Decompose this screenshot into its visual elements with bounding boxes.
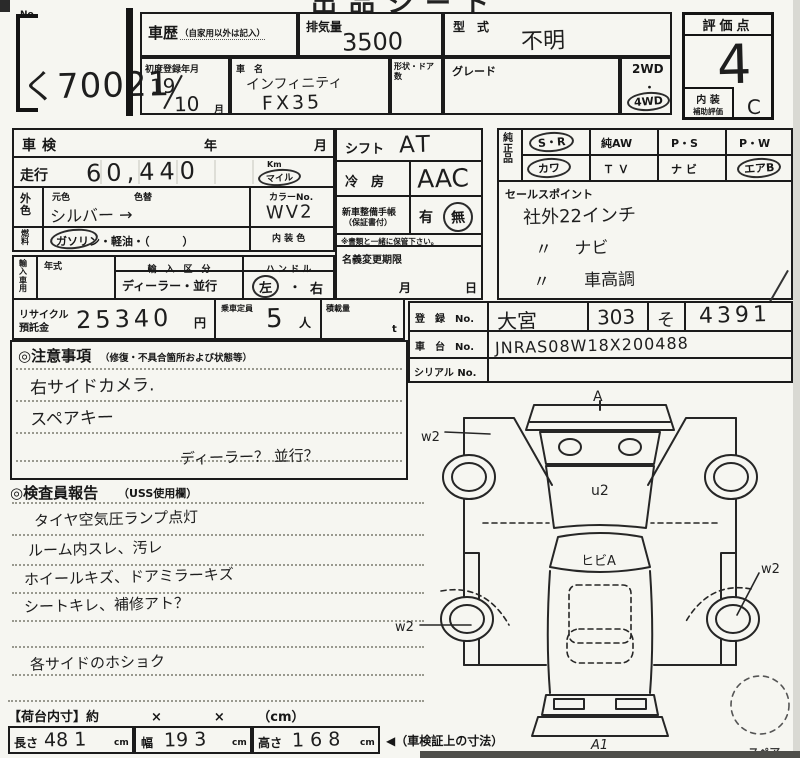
month-suffix: 月 bbox=[214, 101, 224, 116]
odometer-label: 走行 bbox=[20, 165, 48, 185]
color-cell-divider2 bbox=[249, 188, 251, 226]
nin-label: 人 bbox=[299, 314, 311, 331]
dims-title: 【荷台内寸】約 × × （cm） bbox=[8, 706, 305, 725]
ton-label: t bbox=[392, 324, 397, 335]
model-code-box: 型 式 不明 bbox=[443, 12, 672, 57]
length-unit: cm bbox=[114, 738, 129, 748]
taillight-right bbox=[616, 699, 646, 709]
sales-line-2: 〃 ナビ bbox=[535, 233, 609, 260]
odometer-value: 60,440 bbox=[86, 157, 201, 188]
inspector-rule-7 bbox=[12, 674, 424, 676]
reg-kana: そ bbox=[657, 306, 676, 332]
interior-color-label: 内 装 色 bbox=[272, 231, 305, 244]
length-label: 長さ bbox=[14, 734, 38, 751]
handle-header: ハ ン ド ル bbox=[244, 257, 333, 272]
wheel-rear-right bbox=[707, 597, 759, 641]
width-unit: cm bbox=[232, 738, 247, 748]
lot-bracket-bar bbox=[126, 8, 133, 116]
recycle-value: 25340 bbox=[76, 304, 173, 335]
inspector-rule-6 bbox=[12, 646, 424, 648]
displacement-box: 排気量 3500 bbox=[298, 12, 443, 57]
reg-value-row: 大宮 303 そ 4391 bbox=[487, 301, 793, 332]
height-value: 1 6 8 bbox=[292, 728, 341, 751]
inspector-line-1: タイヤ空気圧ランプ点灯 bbox=[34, 506, 199, 531]
irogae-label: 色替 bbox=[134, 190, 152, 203]
sales-line-1: 社外22インチ bbox=[523, 201, 637, 230]
right-edge-strip bbox=[793, 0, 800, 758]
shaken-month-label: 月 bbox=[314, 135, 327, 154]
shaken-year-label: 年 bbox=[204, 135, 217, 154]
car-name-line2: FX35 bbox=[262, 91, 323, 115]
meigi-day: 日 bbox=[465, 279, 477, 296]
odometer-row: 走行 60,440 Km マイル bbox=[12, 156, 335, 188]
score-box: 評価点 4 内 装 補助評価 C bbox=[682, 12, 774, 120]
aircon-row: 冷 房 AAC bbox=[335, 160, 483, 197]
drive-4wd: 4WD bbox=[626, 91, 670, 113]
fuel-divider1 bbox=[42, 228, 44, 250]
color-row: 外色 元色 色替 シルバー → カラーNo. WV2 bbox=[12, 186, 335, 228]
color-cell-divider1 bbox=[42, 188, 44, 226]
kubun-label: 輸 入 区 分 bbox=[147, 265, 210, 275]
reg-label: 登 録 No. bbox=[415, 310, 474, 325]
meigi-box: 名義変更期限 月 日 bbox=[335, 245, 483, 300]
teiin-value: 5 bbox=[266, 304, 283, 334]
dims-separator bbox=[8, 700, 424, 702]
displacement-label: 排気量 bbox=[306, 18, 342, 35]
length-value: 48 1 bbox=[44, 728, 87, 751]
color-value: シルバー → bbox=[50, 201, 133, 227]
recycle-row: リサイクル 預託金 25340 円 乗車定員 5 人 積載量 t bbox=[12, 298, 405, 340]
caution-rule-2 bbox=[16, 400, 402, 402]
shape-door-label: 形状・ドア数 bbox=[394, 62, 441, 81]
shareki-note: （自家用以外は記入） bbox=[180, 27, 265, 40]
drive-2wd: 2WD bbox=[632, 62, 664, 76]
color-no-value: WV2 bbox=[266, 201, 314, 223]
wheel-rear-left bbox=[441, 597, 493, 641]
options-vline2 bbox=[657, 130, 659, 180]
left-rear-damage-mark: w2 bbox=[395, 620, 414, 635]
left-front-leader bbox=[445, 432, 490, 434]
interior-sub-label: 補助評価 bbox=[684, 106, 732, 117]
nenshiki-label: 年式 bbox=[44, 259, 62, 272]
meigi-label: 名義変更期限 bbox=[342, 251, 402, 266]
options-hline bbox=[521, 154, 791, 156]
body-side-left bbox=[548, 571, 550, 693]
width-value: 19 3 bbox=[164, 728, 207, 751]
headlight-right bbox=[619, 439, 641, 455]
handle-label: ハ ン ド ル bbox=[266, 265, 311, 275]
sales-points-label: セールスポイント bbox=[505, 186, 593, 202]
motoiro-label: 元色 bbox=[52, 190, 70, 203]
bottom-dark-band bbox=[420, 751, 800, 758]
caution-line-2: スペアキー bbox=[30, 403, 114, 430]
yen-label: 円 bbox=[194, 314, 206, 331]
inspector-title: ◎検査員報告 bbox=[10, 482, 98, 503]
body-side-right bbox=[650, 571, 652, 693]
grade-label: グレード bbox=[452, 63, 496, 79]
techo-nashi: 無 bbox=[442, 201, 474, 233]
option-airbag: エアB bbox=[736, 156, 782, 179]
serial-label-cell: シリアル No. bbox=[408, 357, 489, 383]
reg-div2 bbox=[647, 303, 649, 330]
shaken-label: 車検 bbox=[22, 135, 62, 155]
interior-grade-cell: 内 装 補助評価 bbox=[684, 87, 734, 118]
reg-number: 4391 bbox=[699, 302, 772, 329]
aircon-divider bbox=[409, 162, 411, 195]
front-damage-mark: A bbox=[593, 389, 603, 405]
option-tv: Ｔ Ｖ bbox=[603, 161, 629, 177]
spare-tire-circle bbox=[731, 676, 789, 734]
fuel-label: 燃料 bbox=[21, 230, 33, 247]
windshield-damage-mark: ヒビA bbox=[581, 554, 616, 569]
fuel-divider2 bbox=[249, 228, 251, 250]
displacement-value: 3500 bbox=[342, 27, 404, 57]
caution-rule-3 bbox=[16, 432, 402, 434]
shaken-row: 車検 年 月 bbox=[12, 128, 335, 158]
recycle-label2: 預託金 bbox=[19, 319, 49, 334]
km-label: Km bbox=[267, 160, 282, 169]
options-grid: 純正品 S・R 純AW P・S P・W カワ Ｔ Ｖ ナ ビ エアB bbox=[497, 128, 793, 182]
headlight-left bbox=[559, 439, 581, 455]
chassis-label: 車 台 No. bbox=[415, 338, 474, 353]
scan-corner-mark bbox=[0, 0, 10, 12]
recycle-divider1 bbox=[214, 300, 216, 338]
reg-div3 bbox=[684, 303, 686, 330]
meigi-month: 月 bbox=[399, 279, 411, 296]
shift-label: シフト bbox=[345, 138, 384, 157]
option-power-windows: P・W bbox=[739, 135, 770, 151]
inspector-rule-5 bbox=[12, 620, 424, 622]
serial-label: シリアル No. bbox=[414, 364, 476, 379]
techo-label2: （保証書付） bbox=[344, 217, 392, 228]
caution-rule-1 bbox=[16, 368, 402, 370]
inspector-line-4: シートキレ、補修アト？ bbox=[24, 592, 190, 617]
reg-div1 bbox=[587, 303, 589, 330]
height-unit: cm bbox=[360, 738, 375, 748]
left-front-damage-mark: w2 bbox=[421, 430, 440, 445]
page-title-text: 出品シート bbox=[256, 0, 556, 12]
ext-color-label: 外色 bbox=[20, 193, 35, 216]
caution-line-3: ディーラー？ 並行？ bbox=[180, 444, 319, 469]
option-power-steering: P・S bbox=[671, 135, 698, 151]
model-code-value: 不明 bbox=[521, 22, 566, 55]
kubun-header: 輸 入 区 分 bbox=[116, 257, 242, 272]
handle-dot: ・ bbox=[289, 278, 301, 295]
grade-box: グレード bbox=[443, 57, 620, 115]
sales-line-3: 〃 車高調 bbox=[533, 265, 636, 293]
fuel-row: 燃料 ガソリン・軽油・（ ） 内 装 色 bbox=[12, 226, 335, 252]
rear-skirt bbox=[532, 717, 668, 736]
option-alloy-wheels: 純AW bbox=[601, 135, 632, 151]
shareki-label: 車歴 bbox=[148, 22, 178, 43]
option-sunroof: S・R bbox=[528, 130, 575, 153]
techo-divider bbox=[409, 197, 411, 233]
inspector-subtitle: （USS使用欄） bbox=[118, 485, 197, 501]
wheel-front-right bbox=[705, 455, 757, 499]
caution-subtitle: （修復・不具合箇所および状態等） bbox=[100, 350, 252, 364]
interior-grade-value: C bbox=[747, 95, 762, 119]
hood-damage-mark: u2 bbox=[591, 483, 609, 499]
shape-door-box: 形状・ドア数 bbox=[390, 57, 443, 115]
reg-class: 303 bbox=[597, 305, 636, 330]
techo-row: 新車整備手帳 （保証書付） 有 無 bbox=[335, 195, 483, 235]
inspector-line-5: 各サイドのホショク bbox=[30, 650, 166, 675]
right-rear-damage-mark: w2 bbox=[761, 562, 780, 577]
cowl-panel bbox=[540, 432, 660, 464]
options-vline3 bbox=[725, 130, 727, 180]
height-box: 高さ 1 6 8 cm bbox=[252, 726, 380, 754]
chassis-label-cell: 車 台 No. bbox=[408, 330, 489, 359]
import-divider1 bbox=[36, 257, 38, 298]
handle-left: 左 bbox=[251, 274, 280, 299]
caution-box: ◎注意事項 （修復・不具合箇所および状態等） 右サイドカメラ. スペアキー ディ… bbox=[10, 340, 408, 480]
length-box: 長さ 48 1 cm bbox=[8, 726, 134, 754]
aircon-value: AAC bbox=[417, 163, 470, 193]
kubun-value: ディーラー・並行 bbox=[122, 277, 217, 294]
sekisai-label: 積載量 bbox=[326, 303, 350, 314]
inspector-rule-2 bbox=[12, 534, 424, 536]
aircon-label: 冷 房 bbox=[345, 171, 384, 190]
auction-sheet: 出品シート No. く70021 車歴 （自家用以外は記入） 排気量 3500 … bbox=[0, 0, 800, 758]
reg-label-cell: 登 録 No. bbox=[408, 301, 489, 332]
drive-box: 2WD ・ 4WD bbox=[620, 57, 672, 115]
rear-window bbox=[567, 629, 633, 663]
option-navi: ナ ビ bbox=[671, 161, 697, 177]
handle-right: 右 bbox=[310, 278, 323, 297]
inspector-rule-4 bbox=[12, 592, 424, 594]
recycle-divider2 bbox=[320, 300, 322, 338]
sales-points-box: セールスポイント 社外22インチ 〃 ナビ 〃 車高調 bbox=[497, 180, 793, 300]
mile-label: マイル bbox=[257, 168, 301, 188]
shift-value: AT bbox=[399, 132, 434, 159]
options-vline1 bbox=[589, 130, 591, 180]
car-name-line1: インフィニティ bbox=[246, 72, 343, 95]
page-title-cropped: 出品シート bbox=[256, 0, 556, 12]
model-code-label: 型 式 bbox=[453, 18, 489, 35]
width-box: 幅 19 3 cm bbox=[134, 726, 252, 754]
inspector-line-2: ルーム内スレ、汚レ bbox=[28, 536, 163, 561]
serial-value-cell bbox=[487, 357, 793, 383]
first-reg-box: 初度登録年月 19 10 月 bbox=[140, 57, 230, 115]
inspector-rule-1 bbox=[12, 502, 424, 504]
roof-outline bbox=[569, 585, 631, 643]
wheel-front-left bbox=[443, 455, 495, 499]
shift-row: シフト AT bbox=[335, 128, 483, 162]
inspector-line-3: ホイールキズ、ドアミラーキズ bbox=[24, 563, 234, 589]
caution-line-1: 右サイドカメラ. bbox=[30, 370, 155, 398]
import-row: 輸入車用 年式 輸 入 区 分 ディーラー・並行 ハ ン ド ル 左 ・ 右 bbox=[12, 255, 335, 300]
width-label: 幅 bbox=[141, 734, 153, 751]
height-label: 高さ bbox=[258, 734, 282, 751]
taillight-left bbox=[554, 699, 584, 709]
junsei-label: 純正品 bbox=[503, 134, 515, 166]
interior-label: 内 装 bbox=[684, 91, 732, 106]
chassis-value-cell: JNRAS08W18X200488 bbox=[487, 330, 793, 359]
option-leather: カワ bbox=[526, 156, 571, 179]
caution-title: ◎注意事項 bbox=[18, 345, 91, 366]
first-reg-month: 10 bbox=[174, 92, 200, 117]
car-diagram-svg: A w2 u2 ヒビA w2 w2 A1 bbox=[393, 385, 798, 750]
teiin-label: 乗車定員 bbox=[221, 303, 253, 314]
car-diagram: A w2 u2 ヒビA w2 w2 A1 bbox=[393, 385, 798, 750]
techo-ari: 有 bbox=[419, 207, 433, 227]
shareki-box: 車歴 （自家用以外は記入） bbox=[140, 12, 298, 57]
chassis-value: JNRAS08W18X200488 bbox=[495, 333, 689, 357]
car-name-box: 車 名 インフィニティ FX35 bbox=[230, 57, 390, 115]
import-label: 輸入車用 bbox=[19, 260, 29, 294]
